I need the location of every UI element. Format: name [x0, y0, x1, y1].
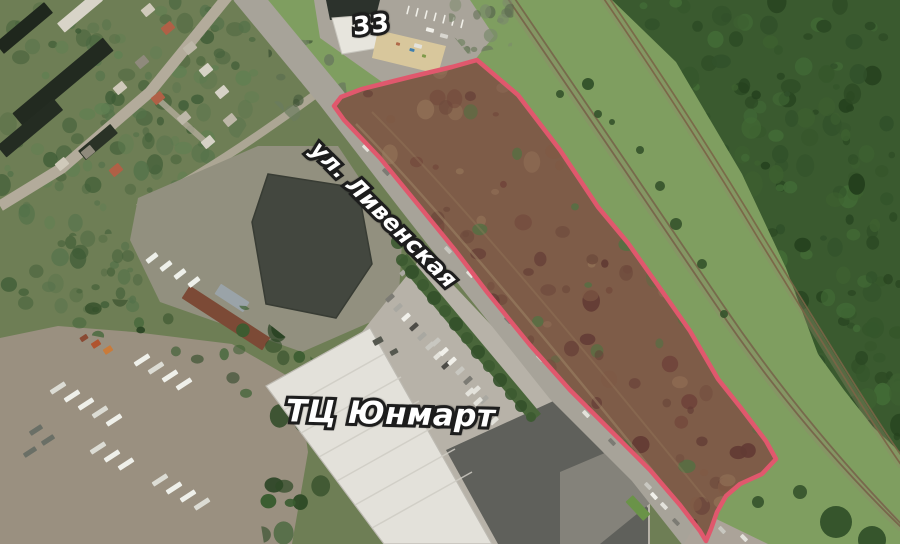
mall-label: ТЦ Юнмарт [286, 396, 496, 432]
building-number-label: 33 [353, 10, 390, 39]
map-viewport[interactable]: 33 ул. Ливенская ТЦ Юнмарт [0, 0, 900, 544]
